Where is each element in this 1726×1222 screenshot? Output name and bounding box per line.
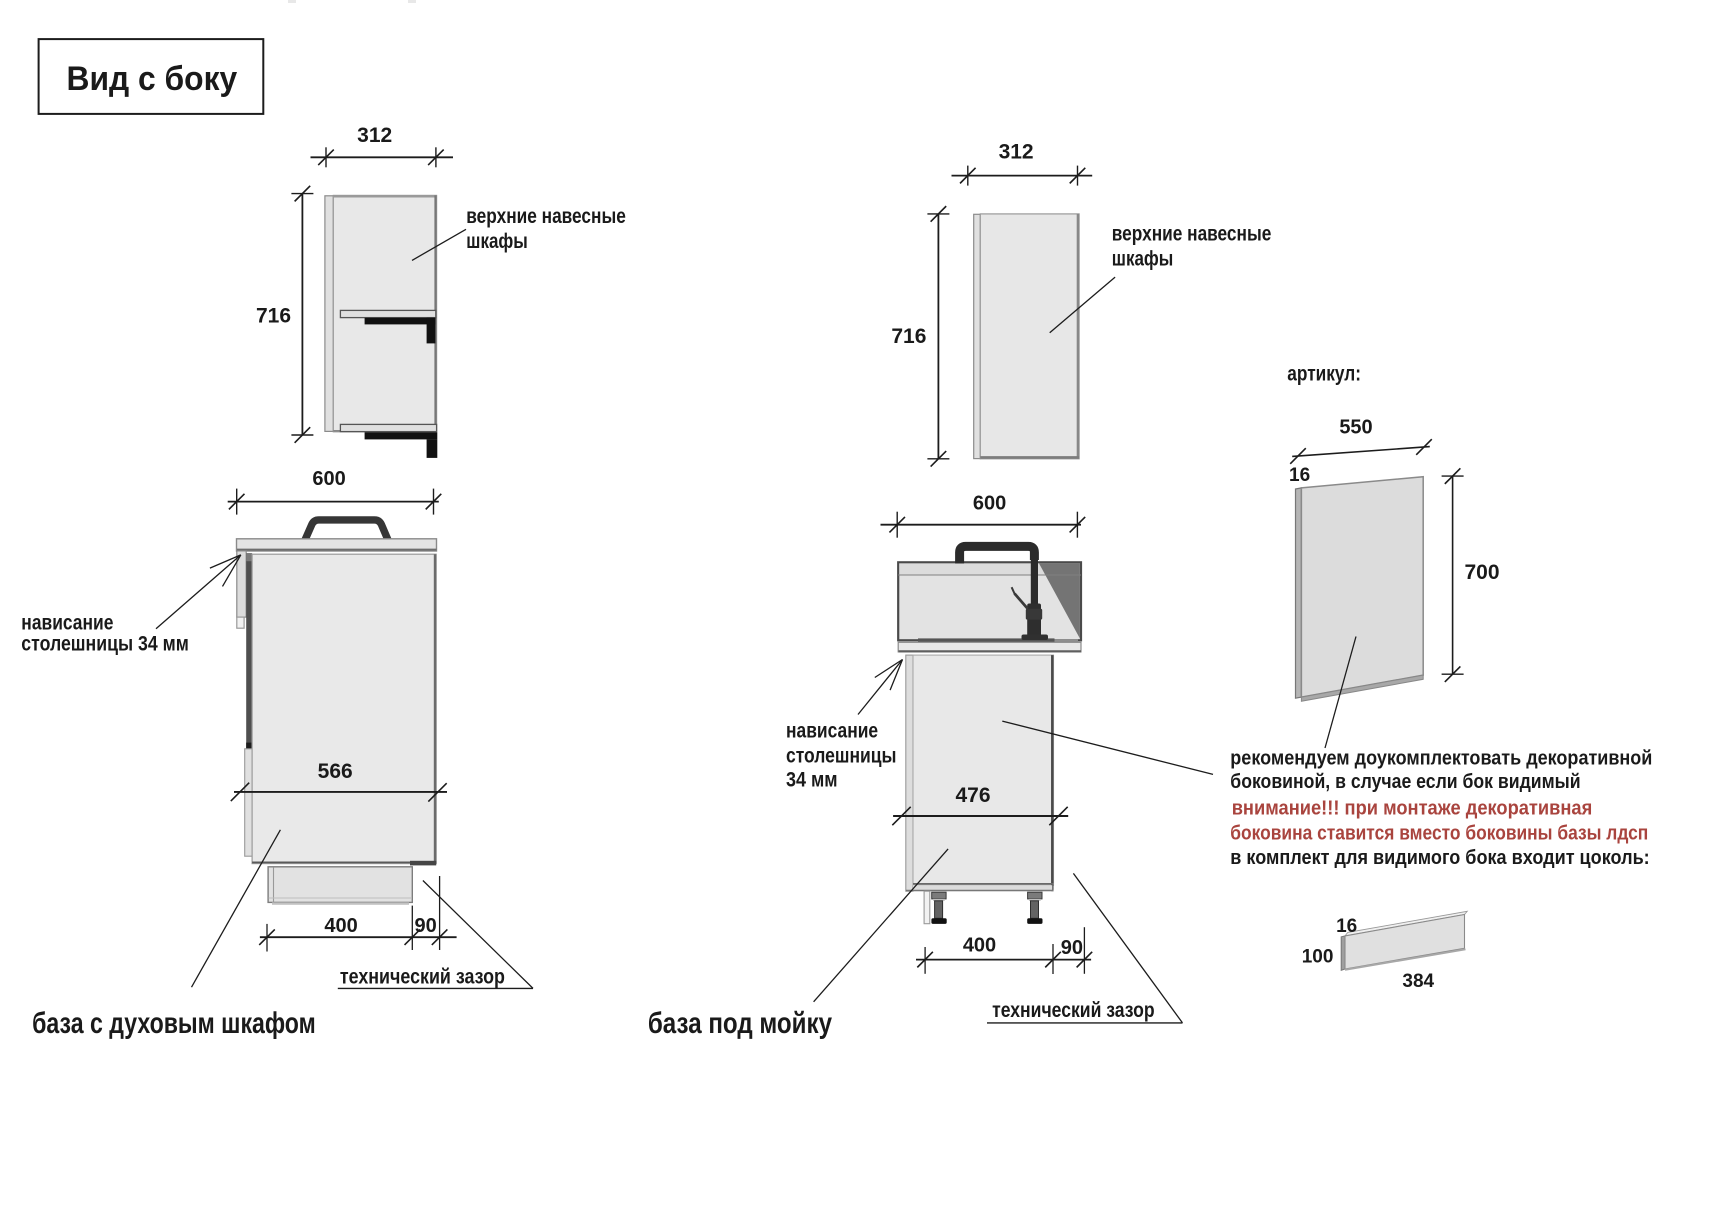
- svg-text:90: 90: [1061, 937, 1083, 959]
- svg-text:100: 100: [1302, 947, 1334, 968]
- svg-text:90: 90: [414, 915, 436, 937]
- svg-text:технический зазор: технический зазор: [992, 999, 1155, 1022]
- svg-text:нависание: нависание: [21, 612, 113, 635]
- svg-text:шкафы: шкафы: [466, 230, 528, 253]
- svg-text:312: 312: [357, 124, 392, 147]
- svg-text:566: 566: [318, 760, 353, 783]
- svg-text:база под мойку: база под мойку: [648, 1007, 832, 1040]
- svg-text:внимание!!! при монтаже декора: внимание!!! при монтаже декоративная: [1232, 797, 1593, 819]
- svg-text:верхние навесные: верхние навесные: [1112, 223, 1272, 246]
- svg-text:400: 400: [324, 915, 357, 937]
- svg-text:база с духовым шкафом: база с духовым шкафом: [32, 1007, 316, 1040]
- svg-text:шкафы: шкафы: [1112, 248, 1174, 271]
- svg-text:716: 716: [256, 304, 291, 327]
- svg-text:600: 600: [973, 492, 1006, 514]
- svg-text:716: 716: [891, 325, 926, 348]
- svg-text:700: 700: [1464, 561, 1499, 584]
- svg-text:боковиной, в случае если бок в: боковиной, в случае если бок видимый: [1230, 771, 1580, 793]
- svg-text:400: 400: [963, 935, 996, 957]
- svg-text:технический зазор: технический зазор: [340, 966, 505, 989]
- svg-text:артикул:: артикул:: [1287, 363, 1361, 386]
- svg-text:34 мм: 34 мм: [786, 769, 838, 792]
- svg-text:312: 312: [999, 141, 1034, 164]
- svg-text:боковина ставится вместо боков: боковина ставится вместо боковины базы л…: [1230, 822, 1648, 844]
- svg-text:столешницы 34 мм: столешницы 34 мм: [21, 633, 189, 656]
- svg-text:нависание: нависание: [786, 720, 878, 743]
- svg-text:16: 16: [1289, 465, 1310, 486]
- svg-text:верхние навесные: верхние навесные: [466, 205, 626, 228]
- svg-text:476: 476: [955, 784, 990, 807]
- svg-text:600: 600: [312, 468, 345, 490]
- svg-text:384: 384: [1402, 971, 1434, 992]
- svg-text:16: 16: [1336, 916, 1357, 937]
- svg-text:столешницы: столешницы: [786, 745, 897, 768]
- svg-text:550: 550: [1339, 417, 1372, 439]
- svg-text:в комплект для видимого бока в: в комплект для видимого бока входит цоко…: [1230, 847, 1649, 869]
- svg-text:Вид с боку: Вид с боку: [67, 60, 238, 98]
- svg-text:рекомендуем доукомплектовать д: рекомендуем доукомплектовать декоративно…: [1230, 748, 1652, 770]
